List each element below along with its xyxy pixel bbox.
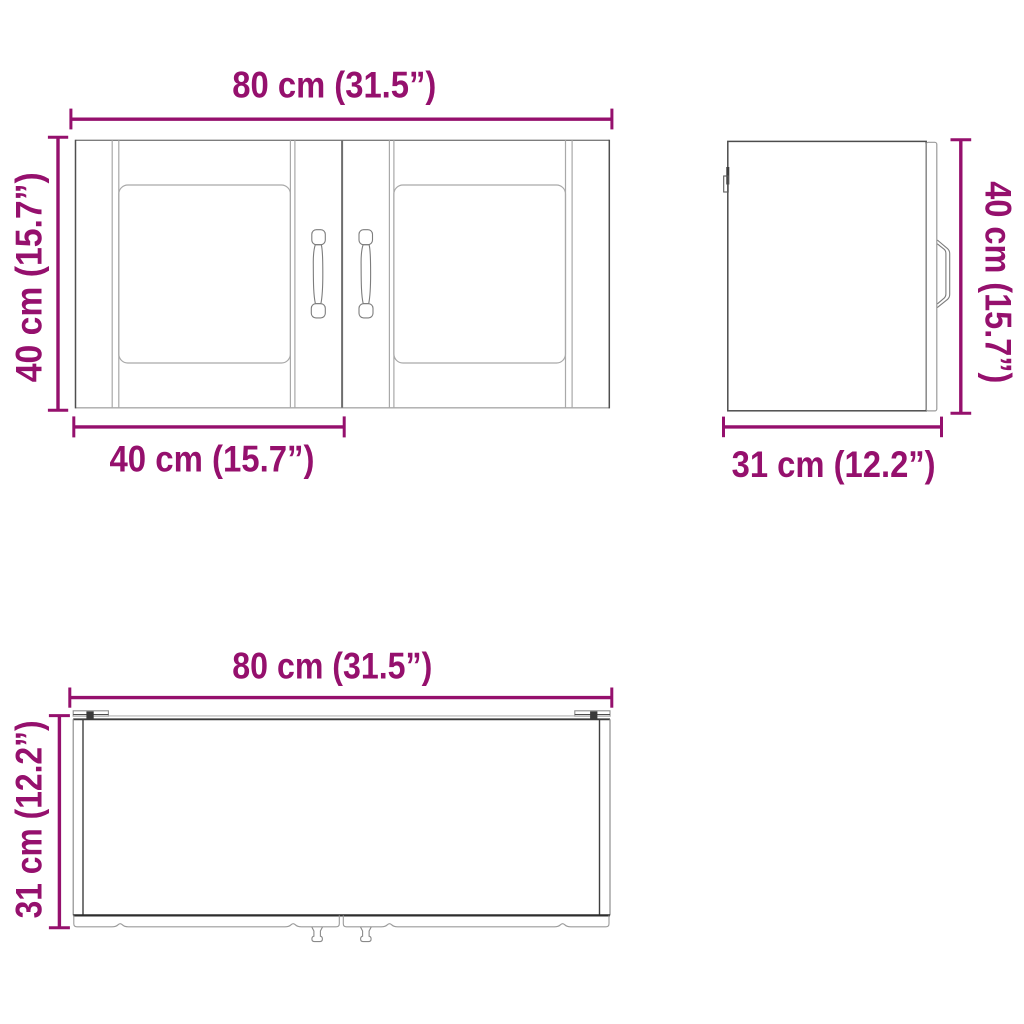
- svg-text:31 cm (12.2”): 31 cm (12.2”): [9, 720, 50, 918]
- svg-text:40 cm (15.7”): 40 cm (15.7”): [110, 439, 315, 480]
- svg-text:80 cm (31.5”): 80 cm (31.5”): [232, 65, 436, 106]
- svg-text:40 cm (15.7”): 40 cm (15.7”): [8, 172, 49, 382]
- svg-text:40 cm (15.7”): 40 cm (15.7”): [978, 181, 1019, 383]
- svg-text:31 cm (12.2”): 31 cm (12.2”): [732, 444, 936, 485]
- svg-text:80 cm (31.5”): 80 cm (31.5”): [232, 646, 432, 687]
